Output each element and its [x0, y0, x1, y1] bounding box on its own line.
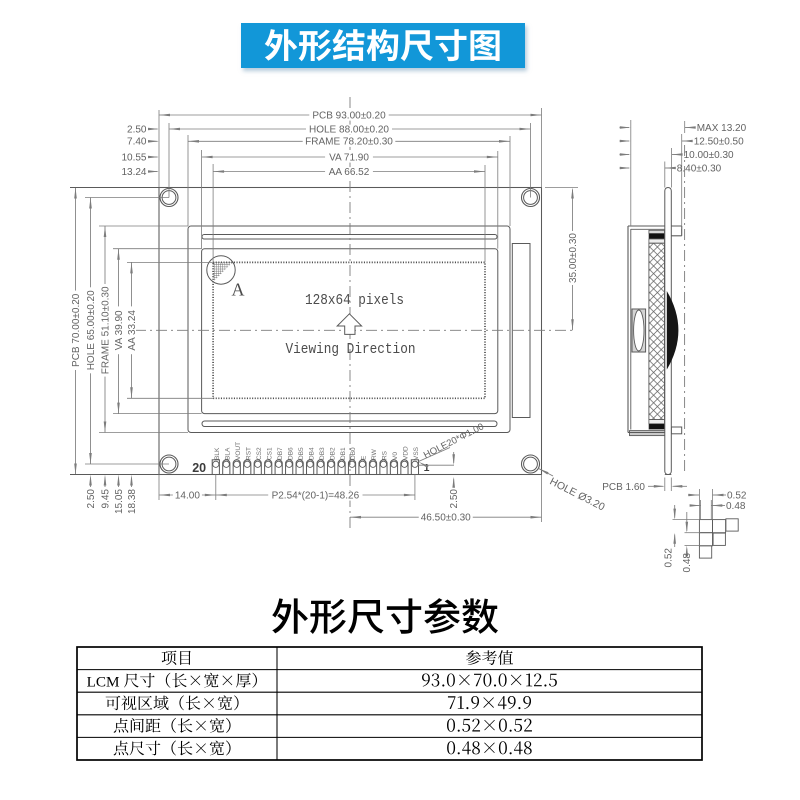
svg-text:P2.54*(20-1)=48.26: P2.54*(20-1)=48.26 — [272, 490, 360, 501]
svg-text:DB1: DB1 — [340, 447, 347, 460]
svg-text:35.00±0.30: 35.00±0.30 — [568, 233, 579, 283]
svg-text:E: E — [361, 455, 368, 460]
svg-text:MAX 13.20: MAX 13.20 — [697, 123, 747, 134]
svg-text:20: 20 — [192, 461, 206, 475]
svg-text:2.50: 2.50 — [86, 489, 97, 509]
svg-text:DB4: DB4 — [308, 447, 315, 460]
svg-text:10.00±0.30: 10.00±0.30 — [684, 150, 734, 161]
svg-text:DB7: DB7 — [277, 447, 284, 460]
svg-text:0.52: 0.52 — [727, 490, 747, 501]
svg-text:46.50±0.30: 46.50±0.30 — [421, 513, 471, 524]
svg-text:128x64 pixels: 128x64 pixels — [305, 291, 404, 309]
svg-text:DB6: DB6 — [287, 447, 294, 460]
svg-text:10.55: 10.55 — [121, 152, 146, 163]
svg-text:PCB 70.00±0.20: PCB 70.00±0.20 — [71, 293, 82, 367]
svg-text:0.52: 0.52 — [663, 548, 674, 568]
svg-text:V0: V0 — [392, 452, 399, 460]
svg-text:DB5: DB5 — [298, 447, 305, 460]
svg-text:FRAME 51.10±0.30: FRAME 51.10±0.30 — [100, 286, 111, 374]
svg-text:AA 66.52: AA 66.52 — [329, 167, 370, 178]
svg-text:HOLE 88.00±0.20: HOLE 88.00±0.20 — [309, 124, 389, 135]
svg-text:0.48: 0.48 — [682, 553, 693, 573]
svg-text:PCB 1.60: PCB 1.60 — [602, 482, 645, 493]
svg-text:CS2: CS2 — [256, 447, 263, 460]
svg-text:VA 39.90: VA 39.90 — [114, 310, 125, 350]
svg-text:DB3: DB3 — [319, 447, 326, 460]
svg-text:VSS: VSS — [413, 446, 420, 460]
svg-text:A: A — [232, 280, 245, 300]
svg-text:15.05: 15.05 — [114, 489, 125, 514]
svg-text:DB0: DB0 — [350, 447, 357, 460]
svg-text:18.38: 18.38 — [127, 489, 138, 514]
svg-text:RS: RS — [382, 450, 389, 460]
svg-text:2.50: 2.50 — [449, 489, 460, 509]
svg-text:FRAME 78.20±0.30: FRAME 78.20±0.30 — [305, 137, 393, 148]
svg-text:VOUT: VOUT — [235, 442, 242, 460]
svg-text:CS1: CS1 — [266, 447, 273, 460]
svg-text:2.50: 2.50 — [127, 124, 147, 135]
svg-text:RST: RST — [245, 447, 252, 460]
svg-text:14.00: 14.00 — [175, 490, 200, 501]
svg-text:BLK: BLK — [214, 447, 221, 460]
svg-text:LCM: LCM — [87, 673, 120, 690]
svg-text:0.48: 0.48 — [726, 501, 746, 512]
svg-text:VA 71.90: VA 71.90 — [329, 152, 369, 163]
svg-text:9.45: 9.45 — [100, 489, 111, 509]
svg-text:BLA: BLA — [224, 447, 231, 460]
svg-text:1: 1 — [424, 462, 430, 474]
svg-text:PCB 93.00±0.20: PCB 93.00±0.20 — [312, 110, 386, 121]
svg-text:DB2: DB2 — [329, 447, 336, 460]
svg-text:HOLE Ø3.20: HOLE Ø3.20 — [548, 475, 607, 513]
svg-text:7.40: 7.40 — [127, 137, 147, 148]
svg-text:13.24: 13.24 — [121, 167, 146, 178]
svg-text:8.40±0.30: 8.40±0.30 — [677, 163, 722, 174]
svg-text:HOLE 65.00±0.20: HOLE 65.00±0.20 — [86, 290, 97, 370]
svg-text:Viewing Direction: Viewing Direction — [286, 340, 416, 358]
svg-text:RW: RW — [371, 448, 378, 460]
svg-text:12.50±0.50: 12.50±0.50 — [694, 136, 744, 147]
svg-text:VDD: VDD — [403, 446, 410, 460]
svg-text:AA 33.24: AA 33.24 — [127, 310, 138, 351]
